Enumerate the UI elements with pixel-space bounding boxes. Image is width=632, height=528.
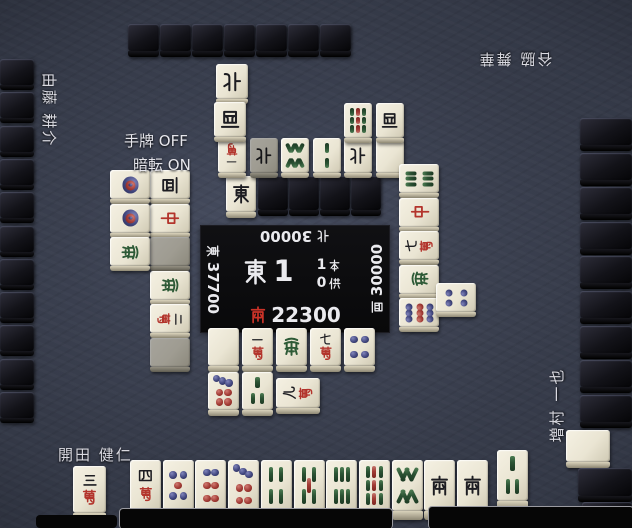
east-wind-icon (206, 244, 220, 258)
bamboo-stick (372, 466, 376, 478)
discard-left (150, 237, 190, 271)
bamboo-stick (422, 171, 434, 175)
kanji-k-south-icon (429, 467, 450, 505)
pin-circle (236, 497, 244, 505)
discard-top (344, 138, 372, 178)
mahjong-table: 由藤 耕介 増村 一也 谷脇 舞華 開田 健仁 手牌 OFF 暗転 ON 300… (0, 0, 632, 528)
discard-left (150, 338, 190, 372)
bamboo-stick (405, 177, 417, 181)
tile-face (160, 24, 191, 51)
tile-glyph (228, 178, 254, 210)
tile-face (0, 59, 34, 85)
bamboo-stick (361, 117, 365, 125)
bamboo-stick (422, 177, 434, 181)
bamboo-stick (379, 466, 383, 478)
discard-right (399, 298, 439, 332)
pin-circle (236, 484, 244, 492)
kanji-k4-icon (137, 466, 154, 484)
pin-circle (460, 289, 467, 296)
pin-circle (211, 495, 219, 503)
bamboo-stick (279, 467, 283, 482)
pin-circle (416, 303, 423, 310)
tile-front-edge (289, 210, 319, 216)
tile-glyph (252, 140, 276, 171)
tile-face (580, 222, 632, 249)
discard-bottom (242, 328, 273, 372)
tile-front-edge (392, 511, 423, 520)
drawn-tile-3s[interactable] (497, 450, 528, 510)
tile-front-edge (436, 312, 476, 317)
tile-front-edge (344, 173, 372, 178)
pin-circle (211, 469, 219, 477)
pin-circle (350, 336, 358, 344)
bamboo-stick (405, 182, 417, 186)
score-west: 30000 (367, 229, 387, 329)
kanji-k-man-icon (81, 488, 98, 507)
discard-left (110, 170, 150, 204)
tile-glyph (152, 239, 188, 264)
left-wall-tile (0, 259, 34, 290)
tile-face (580, 256, 632, 283)
kanji-k-hatsu-icon (281, 333, 302, 360)
south-wind-icon (249, 306, 267, 324)
pin-circle (128, 183, 132, 187)
discard-left (150, 304, 190, 338)
option-anten: 暗転 ON (133, 154, 191, 175)
tile-glyph (278, 380, 318, 406)
tile-face (351, 176, 381, 210)
discard-top (216, 64, 248, 104)
score-north-value: 30000 (260, 227, 312, 245)
tile-front-edge (0, 152, 34, 157)
tile-front-edge (218, 173, 246, 178)
top-wall-tile (224, 24, 255, 57)
kyotaku-counter: 0 (302, 275, 356, 291)
pin-circle (216, 398, 224, 406)
tile-glyph (244, 330, 271, 364)
bamboo-stick (269, 467, 273, 482)
bamboo-stick (334, 489, 338, 504)
kanji-k-man-icon (297, 385, 315, 400)
tile-glyph (394, 462, 421, 509)
tile-glyph (152, 340, 188, 365)
tile-glyph (165, 462, 192, 509)
player-name-top: 谷脇 舞華 (455, 48, 575, 70)
tile-glyph (112, 239, 148, 264)
tile-face (580, 153, 632, 180)
tile-front-edge (580, 353, 632, 359)
top-wall-tile (192, 24, 223, 57)
tile-glyph (152, 172, 188, 197)
tile-glyph (378, 105, 402, 136)
tile-glyph (216, 104, 244, 135)
right-wall-tile (580, 256, 632, 289)
top-wall-tile (128, 24, 159, 57)
tile-face (320, 176, 350, 210)
discard-top (218, 138, 246, 178)
tile-glyph (401, 200, 437, 225)
left-wall-tile (0, 159, 34, 190)
pin-circle (460, 299, 467, 306)
discard-right (399, 231, 439, 265)
kanji-k7-icon (317, 333, 334, 346)
kanji-k-man-icon (138, 484, 154, 505)
right-wall-tile (580, 395, 632, 428)
score-east-value: 37700 (204, 262, 222, 314)
pin-circle (180, 492, 188, 500)
round-wind-east-icon (242, 257, 269, 286)
discard-left (110, 204, 150, 238)
riichi-declared-tile (276, 378, 320, 414)
bamboo-stick (350, 108, 354, 116)
bamboo-stick (350, 125, 354, 133)
round-number: 1 (273, 254, 293, 288)
dora-indicator-tile (226, 176, 256, 218)
pin-circle (244, 484, 252, 492)
tile-face (0, 359, 34, 385)
discard-top (250, 138, 278, 178)
left-wall-tile (0, 59, 34, 90)
pin-circle (350, 351, 358, 359)
option-anten-value: ON (168, 156, 191, 174)
pin-circle (203, 469, 211, 477)
tile-glyph (230, 462, 257, 509)
west-wind-icon (370, 300, 384, 314)
tile-front-edge (580, 318, 632, 324)
left-wall-tile (0, 392, 34, 423)
kanji-k-hatsu-icon (405, 269, 434, 289)
tile-face (0, 126, 34, 152)
tile-front-edge (0, 385, 34, 390)
score-south: 22300 (235, 301, 355, 329)
right-wall-tile (580, 187, 632, 220)
kanji-k-south-icon (462, 467, 483, 505)
kyotaku-kanji-icon (328, 277, 341, 290)
bamboo-stick (366, 480, 370, 492)
tile-glyph (361, 462, 388, 509)
tile-front-edge (214, 137, 246, 142)
kanji-k-man-icon (418, 238, 434, 253)
bamboo-stick (366, 493, 370, 505)
tile-glyph (197, 462, 224, 509)
bamboo-stick (506, 479, 510, 494)
right-wall-tile (580, 118, 632, 151)
discard-right (399, 265, 439, 299)
bottom-bar-right[interactable] (428, 506, 632, 528)
tile-front-edge (0, 252, 34, 257)
pin-circle (169, 471, 177, 479)
discard-bottom (242, 372, 273, 416)
bottom-bar-center[interactable] (119, 508, 393, 528)
bamboo-stick (356, 125, 360, 133)
discard-bottom (208, 328, 239, 372)
tile-front-edge (110, 266, 150, 271)
kanji-k-north-icon (349, 143, 368, 168)
player-name-right: 増村 一也 (546, 350, 566, 460)
tile-glyph (263, 462, 290, 509)
pin-circle (174, 482, 182, 490)
tile-glyph (378, 140, 402, 171)
left-wall-tile (0, 192, 34, 223)
tile-face (128, 24, 159, 51)
tile-face (580, 360, 632, 387)
tile-front-edge (580, 249, 632, 255)
bamboo-stick (340, 489, 344, 504)
hand-tile-8s[interactable] (392, 460, 423, 520)
bamboo-stick (356, 117, 360, 125)
tile-face (0, 325, 34, 351)
pin-circle (180, 471, 188, 479)
tile-glyph (328, 462, 355, 509)
bamboo-stick (302, 467, 306, 482)
tile-glyph (210, 330, 237, 364)
left-wall-tile (0, 126, 34, 157)
tile-glyph (152, 306, 188, 331)
kanji-k7-icon (404, 238, 418, 254)
bamboo-stick (379, 480, 383, 492)
tile-front-edge (0, 351, 34, 356)
tile-face (0, 226, 34, 252)
tile-glyph (438, 285, 474, 310)
pin-circle (405, 303, 412, 310)
tile-front-edge (276, 366, 307, 372)
tile-glyph (346, 330, 373, 364)
tile-glyph (296, 462, 323, 509)
tile-front-edge (313, 173, 341, 178)
bamboo-stick (379, 493, 383, 505)
tile-front-edge (256, 51, 287, 57)
tile-face (224, 24, 255, 51)
top-wall-tile (160, 24, 191, 57)
kanji-k-north-icon (221, 69, 243, 94)
top-wall-tile (288, 24, 319, 57)
tile-face (0, 259, 34, 285)
pin-circle (361, 351, 369, 359)
option-tehai: 手牌 OFF (124, 130, 188, 151)
tile-front-edge (242, 410, 273, 416)
tile-glyph (210, 374, 237, 408)
right-wall-tile (578, 468, 632, 502)
tile-face (258, 176, 288, 210)
bamboo-stick (307, 478, 311, 493)
bamboo-stick (366, 466, 370, 478)
tile-front-edge (580, 422, 632, 428)
bamboo-stick (269, 489, 273, 504)
left-wall-tile (0, 92, 34, 123)
tile-glyph (112, 206, 148, 231)
tile-front-edge (344, 138, 372, 143)
right-face-up-tile (566, 430, 610, 468)
kanji-k-hatsu-icon (116, 242, 145, 262)
pin-circle (211, 482, 219, 490)
tile-face (0, 92, 34, 118)
pin-circle (244, 497, 252, 505)
dead-wall-tile (351, 176, 381, 216)
kanji-k-west-icon (156, 175, 185, 195)
tile-front-edge (128, 51, 159, 57)
tile-glyph (499, 452, 526, 499)
dead-wall-tile (320, 176, 350, 216)
bamboo-stick (361, 125, 365, 133)
tile-glyph (401, 267, 437, 292)
kanji-k-man-icon (155, 311, 171, 326)
kanji-k-north-icon (254, 143, 273, 168)
kanji-k-west-icon (219, 107, 241, 132)
bamboo-stick (372, 480, 376, 492)
kanji-k1-icon (249, 333, 266, 346)
bamboo-stick (260, 393, 264, 404)
bamboo-stick (346, 467, 350, 482)
tile-front-edge (288, 51, 319, 57)
tile-glyph (401, 233, 437, 258)
bamboo-stick (325, 143, 329, 153)
tile-face (289, 176, 319, 210)
tile-front-edge (0, 218, 34, 223)
bamboo-stick (405, 171, 417, 175)
tile-front-edge (580, 283, 632, 289)
pin-circle (445, 289, 452, 296)
tile-front-edge (0, 85, 34, 90)
kanji-k2-icon (171, 311, 185, 327)
kanji-k3-icon (81, 472, 99, 488)
bamboo-stick (312, 467, 316, 482)
tile-front-edge (250, 173, 278, 178)
bamboo-stick (279, 489, 283, 504)
tile-glyph (346, 105, 370, 136)
discard-right (436, 283, 476, 317)
discard-bottom (344, 328, 375, 372)
hand-tile-3m[interactable] (73, 466, 106, 522)
pin-circle (225, 379, 233, 387)
discard-left (150, 271, 190, 305)
bamboo-stick (422, 182, 434, 186)
score-north: 30000 (245, 227, 345, 245)
bamboo-stick (346, 489, 350, 504)
kanji-k-man-icon (225, 143, 239, 157)
left-wall-tile (0, 359, 34, 390)
pin-circle (361, 336, 369, 344)
pin-circle (224, 398, 232, 406)
tile-front-edge (192, 51, 223, 57)
bamboo-stick (361, 108, 365, 116)
tile-glyph (401, 300, 437, 325)
tile-front-edge (399, 327, 439, 332)
tile-front-edge (276, 408, 320, 414)
tile-front-edge (310, 366, 341, 372)
bamboo-stick (325, 158, 329, 168)
pin-circle (224, 389, 232, 397)
tile-front-edge (320, 210, 350, 216)
tile-glyph (346, 140, 370, 171)
discard-bottom (310, 328, 341, 372)
tile-face (0, 392, 34, 418)
tile-front-edge (580, 387, 632, 393)
center-info-panel: 30000 37700 30000 22300 1 1 0 (200, 225, 390, 333)
honba-kanji-icon (328, 259, 341, 272)
right-wall-tile (580, 291, 632, 324)
discard-right (399, 164, 439, 198)
score-south-value: 22300 (271, 303, 341, 327)
player-name-left: 由藤 耕介 (40, 55, 60, 165)
tile-glyph (220, 140, 244, 171)
tile-face (320, 24, 351, 51)
tile-glyph (244, 374, 271, 408)
tile-face (288, 24, 319, 51)
tile-front-edge (208, 410, 239, 416)
top-wall-tile (320, 24, 351, 57)
pin-circle (445, 299, 452, 306)
tile-face (256, 24, 287, 51)
tile-face (580, 291, 632, 318)
bamboo-stick (334, 467, 338, 482)
option-anten-label: 暗転 (133, 156, 163, 174)
tile-front-edge (344, 366, 375, 372)
tile-glyph (283, 140, 307, 171)
kanji-k1-icon (225, 156, 240, 168)
honba-counter: 1 (302, 257, 356, 273)
tile-front-edge (281, 173, 309, 178)
kanji-k-hatsu-icon (156, 275, 185, 295)
tile-face (580, 187, 632, 214)
tile-face (0, 192, 34, 218)
right-wall-tile (580, 326, 632, 359)
left-wall-tile (0, 292, 34, 323)
tile-face (192, 24, 223, 51)
bottom-bar-left[interactable] (36, 515, 117, 528)
bamboo-stick (255, 377, 259, 388)
tile-glyph (426, 462, 453, 509)
north-wind-icon (316, 229, 330, 243)
player-name-bottom: 開田 健仁 (58, 444, 218, 466)
tile-front-edge (376, 138, 404, 143)
tile-glyph (459, 462, 486, 509)
kanji-k-chun-icon (156, 208, 185, 228)
tile-glyph (315, 140, 339, 171)
discard-top (376, 103, 404, 143)
right-wall-tile (580, 222, 632, 255)
kanji-k-man-icon (318, 346, 334, 361)
option-tehai-label: 手牌 (124, 132, 154, 150)
pin-circle (203, 495, 211, 503)
tile-front-edge (0, 418, 34, 423)
bamboo-stick (372, 493, 376, 505)
right-wall-tile (580, 153, 632, 186)
tile-front-edge (0, 185, 34, 190)
tile-face (0, 159, 34, 185)
right-wall-tile (580, 360, 632, 393)
pin-circle (203, 482, 211, 490)
dead-wall-tile (258, 176, 288, 216)
option-tehai-value: OFF (159, 132, 188, 150)
pin-circle (128, 216, 132, 220)
discard-left (150, 204, 190, 238)
tile-front-edge (580, 145, 632, 151)
tile-front-edge (226, 212, 256, 218)
discard-top (344, 103, 372, 143)
tile-face (580, 118, 632, 145)
pin-circle (216, 389, 224, 397)
tile-glyph (152, 206, 188, 231)
tile-glyph (75, 468, 104, 511)
bamboo-stick (350, 117, 354, 125)
tile-front-edge (0, 318, 34, 323)
honba-count: 1 (317, 257, 327, 273)
discard-bottom (208, 372, 239, 416)
bamboo-stick (251, 393, 255, 404)
discard-bottom (276, 328, 307, 372)
bamboo-stick (312, 489, 316, 504)
bamboo-stick (340, 467, 344, 482)
